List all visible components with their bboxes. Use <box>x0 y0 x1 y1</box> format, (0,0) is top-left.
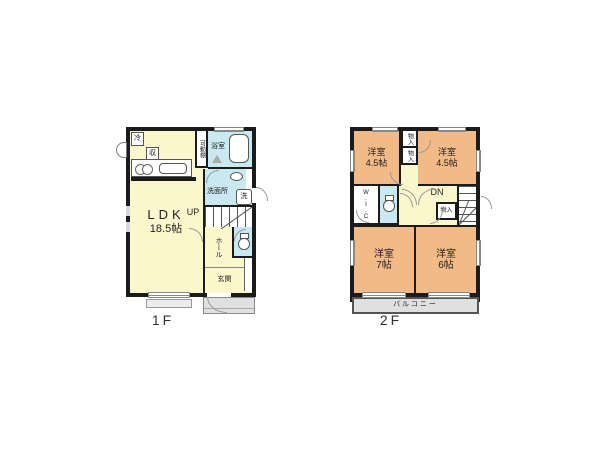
window <box>214 127 244 132</box>
toilet-room-2f <box>380 186 399 225</box>
porch-step-line <box>204 308 254 309</box>
room-nw-name: 洋室 <box>367 147 385 157</box>
movable-shelf-label: 可動棚 <box>199 140 205 158</box>
window <box>148 292 190 298</box>
stove-icon <box>135 163 153 174</box>
window <box>126 222 130 232</box>
window <box>438 127 466 132</box>
window <box>372 127 398 132</box>
hall-1f: ホール <box>205 227 232 267</box>
room-sw-name: 洋室 <box>374 249 394 261</box>
room-se-size: 6帖 <box>438 260 454 272</box>
balcony: バルコニー <box>352 297 479 314</box>
window <box>362 292 406 298</box>
window <box>350 150 355 172</box>
bath-folding-door-icon <box>212 155 222 163</box>
room-ne-name: 洋室 <box>438 147 456 157</box>
storage-label: 収 <box>149 150 156 158</box>
closet-a-label: 物入 <box>407 133 413 145</box>
room-southeast: 洋室 6帖 <box>416 225 476 293</box>
window <box>476 240 481 266</box>
stairs-2f <box>457 186 476 225</box>
room-sw-size: 7帖 <box>376 260 392 272</box>
window <box>476 150 481 172</box>
closet-b-label: 物入 <box>407 150 413 162</box>
washbasin-icon <box>230 172 243 181</box>
room-se-name: 洋室 <box>436 249 456 261</box>
entrance: 玄関 <box>205 267 244 293</box>
fridge-label: 冷 <box>134 135 141 143</box>
window <box>428 292 470 298</box>
wall-segment <box>131 177 196 181</box>
washroom-label: 洗面所 <box>207 186 228 196</box>
ldk-size: 18.5帖 <box>150 223 182 236</box>
floorplan-1f: 冷 収 可動棚 浴室 洗面所 洗 UP ホール <box>0 0 300 449</box>
fridge-box: 冷 <box>131 132 144 146</box>
kitchen-sink-icon <box>159 163 187 174</box>
window <box>126 206 130 216</box>
floor2-text: 2F <box>380 312 402 328</box>
room-nw-size: 4.5帖 <box>366 158 388 168</box>
floor-label-1f: 1F <box>146 311 180 329</box>
ldk-room-label: LDK 18.5帖 <box>138 206 194 238</box>
bathtub-icon <box>229 134 249 163</box>
closet-top-b: 物入 <box>401 148 418 165</box>
floor-label-2f: 2F <box>374 311 408 329</box>
balcony-label: バルコニー <box>393 301 438 309</box>
hall-label: ホール <box>215 237 222 258</box>
movable-shelf: 可動棚 <box>195 131 208 168</box>
door-swing-arc <box>481 196 492 209</box>
room-ne-size: 4.5帖 <box>436 158 458 168</box>
ldk-name: LDK <box>147 208 184 223</box>
floorplan-2f: 洋室 4.5帖 物入 物入 洋室 4.5帖 W.I.C DN 物入 洋室 7 <box>300 0 600 449</box>
washer-label: 洗 <box>241 193 248 201</box>
bathroom: 浴室 <box>208 131 252 169</box>
terrace-step <box>146 299 192 308</box>
kitchen-counter <box>131 159 192 177</box>
bathroom-label: 浴室 <box>211 141 225 151</box>
shoe-cabinet <box>244 258 252 291</box>
room-southwest: 洋室 7帖 <box>354 225 416 293</box>
window <box>116 142 127 158</box>
floorplan-canvas: 冷 収 可動棚 浴室 洗面所 洗 UP ホール <box>0 0 600 449</box>
door-swing-arc <box>256 187 268 201</box>
closet-top-a: 物入 <box>401 131 418 148</box>
toilet-icon <box>383 195 394 211</box>
washing-machine: 洗 <box>236 189 252 205</box>
stairs-1f <box>205 205 252 227</box>
entrance-label: 玄関 <box>218 276 232 284</box>
floor1-text: 1F <box>152 312 174 328</box>
window <box>350 240 355 266</box>
